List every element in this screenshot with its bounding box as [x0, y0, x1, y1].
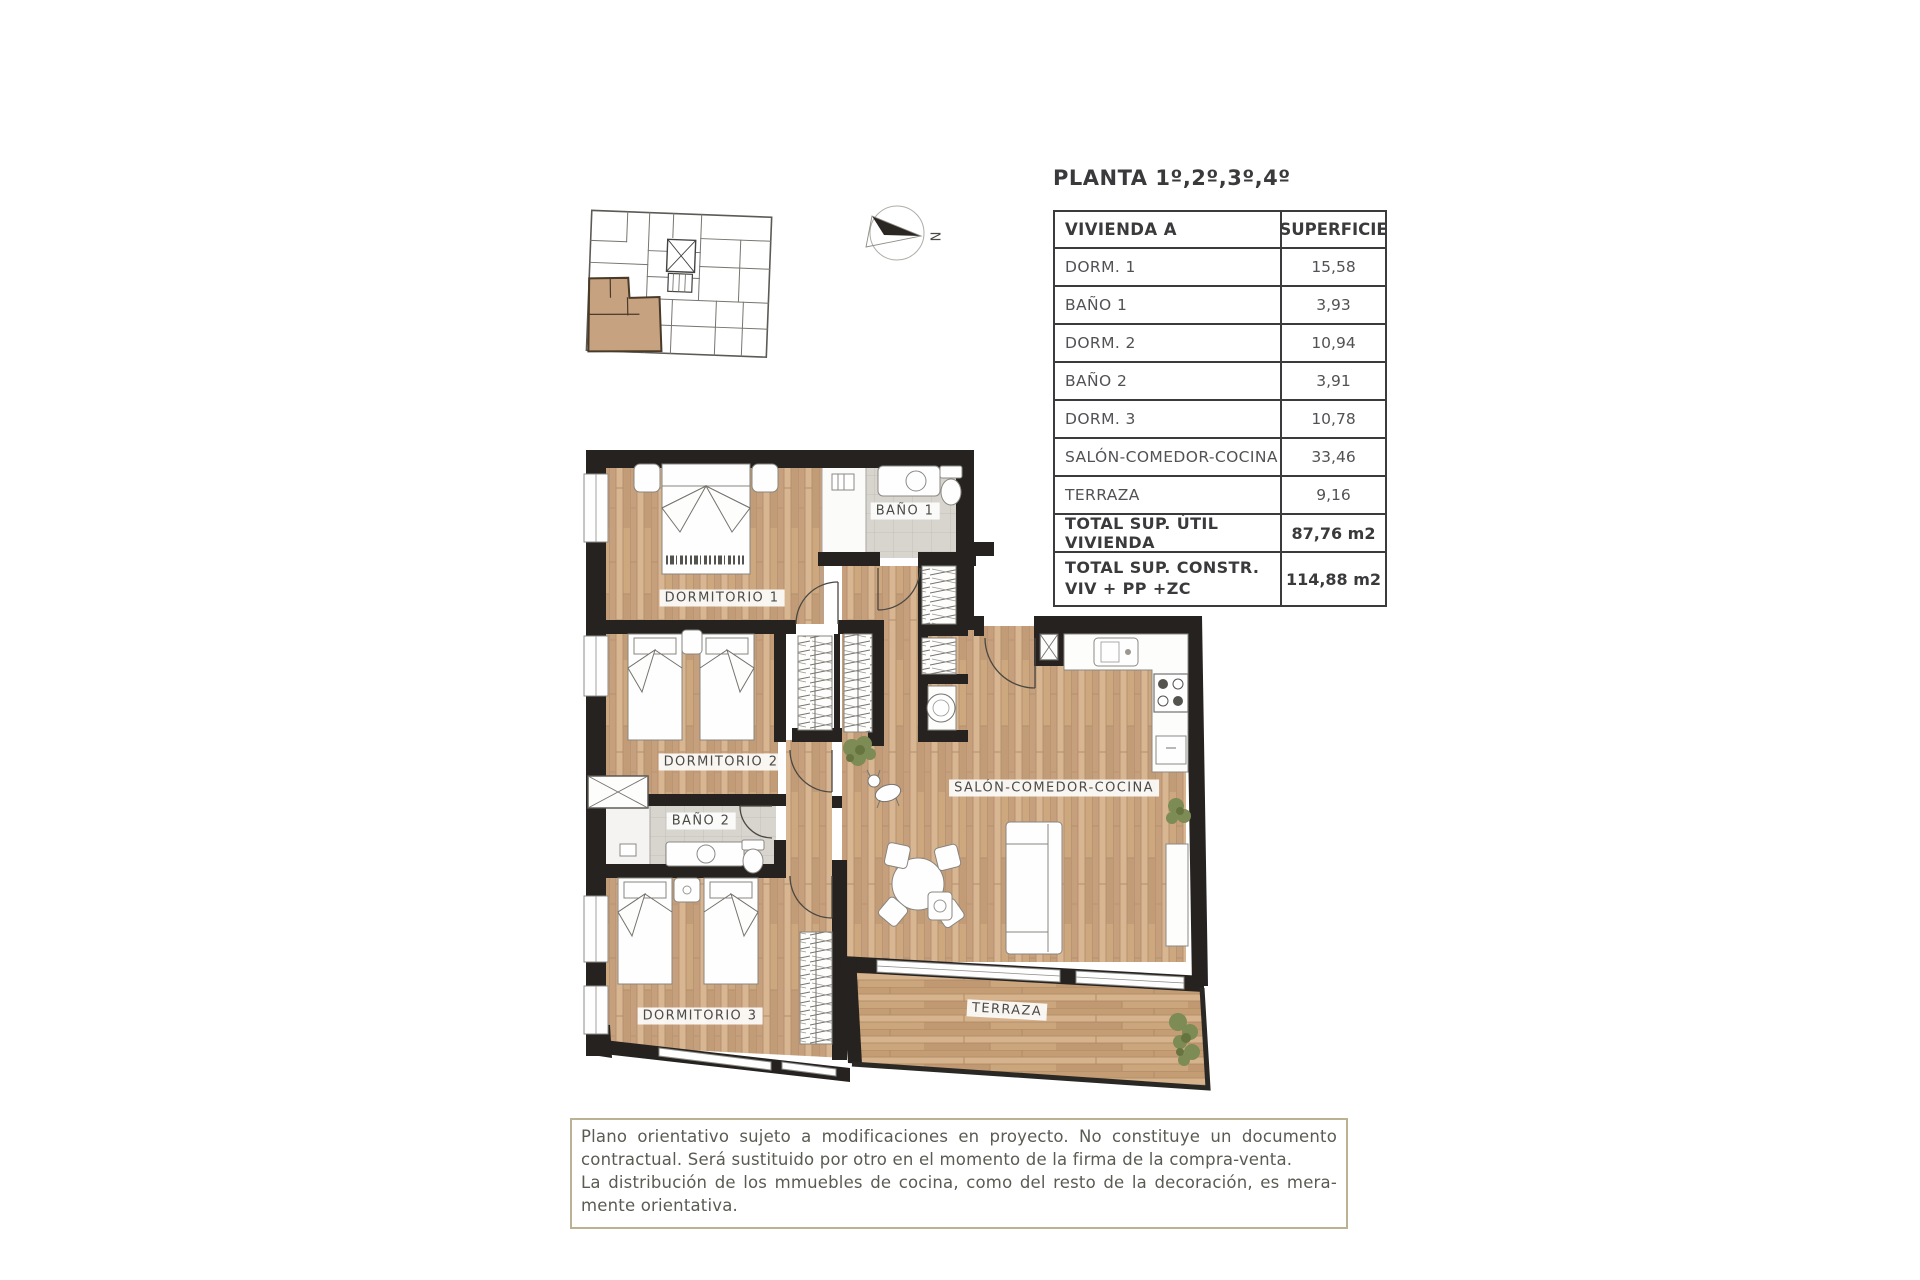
surface-table: VIVIENDA A SUPERFICIE DORM. 1 15,58 BAÑO…	[1053, 210, 1387, 607]
stove	[1154, 674, 1188, 712]
room-label-banio2: BAÑO 2	[667, 813, 736, 830]
disclaimer-line: La distribución de los mmuebles de cocin…	[581, 1171, 1337, 1194]
table-row: DORM. 2 10,94	[1055, 323, 1385, 361]
table-header-row: VIVIENDA A SUPERFICIE	[1055, 212, 1385, 247]
shaft-box	[588, 776, 648, 808]
room-label-banio1: BAÑO 1	[871, 503, 940, 520]
sideboard	[1166, 844, 1188, 946]
compass-icon	[866, 206, 924, 260]
entry-pillar	[1040, 634, 1058, 660]
disclaimer-line: mente orientativa.	[581, 1194, 1337, 1217]
table-row: TERRAZA 9,16	[1055, 475, 1385, 513]
room-label-dormitorio1: DORMITORIO 1	[660, 590, 785, 607]
room-label-dormitorio3: DORMITORIO 3	[638, 1008, 763, 1025]
table-row: SALÓN-COMEDOR-COCINA 33,46	[1055, 437, 1385, 475]
table-row: DORM. 1 15,58	[1055, 247, 1385, 285]
table-row: DORM. 3 10,78	[1055, 399, 1385, 437]
floor-plan-page: N PLANTA 1º,2º,3º,4º VIVIENDA A SUPERFIC…	[0, 0, 1920, 1280]
disclaimer-line: Plano orientativo sujeto a modificacione…	[581, 1125, 1337, 1148]
table-total-util-row: TOTAL SUP. ÚTIL VIVIENDA 87,76 m2	[1055, 513, 1385, 551]
disclaimer-line: contractual. Será sustituido por otro en…	[581, 1148, 1337, 1171]
table-total-constr-row: TOTAL SUP. CONSTR. VIV + PP +ZC 114,88 m…	[1055, 551, 1385, 605]
dishwasher	[1156, 736, 1186, 764]
table-header-area: SUPERFICIE	[1280, 212, 1385, 247]
table-row: BAÑO 2 3,91	[1055, 361, 1385, 399]
sofa	[1006, 822, 1062, 954]
page-title: PLANTA 1º,2º,3º,4º	[1053, 166, 1291, 190]
room-label-dormitorio2: DORMITORIO 2	[659, 754, 784, 771]
table-row: BAÑO 1 3,93	[1055, 285, 1385, 323]
laundry	[927, 686, 956, 730]
building-key-plan	[586, 210, 771, 358]
disclaimer-box: Plano orientativo sujeto a modificacione…	[570, 1118, 1348, 1229]
floor-plan-drawing	[0, 0, 1920, 1280]
table-header-unit: VIVIENDA A	[1055, 212, 1280, 247]
room-label-salon: SALÓN-COMEDOR-COCINA	[949, 780, 1159, 797]
compass-north-label: N	[926, 232, 941, 242]
